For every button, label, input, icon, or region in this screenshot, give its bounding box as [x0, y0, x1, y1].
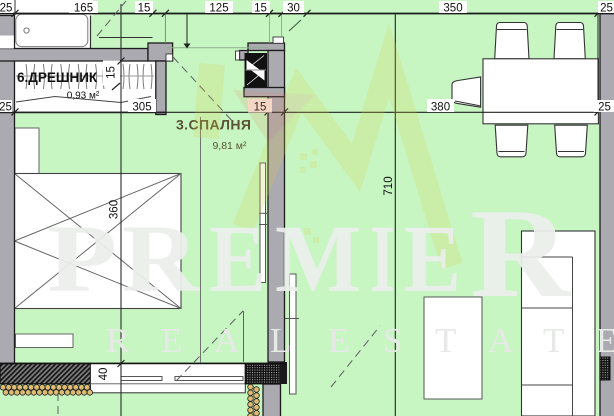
svg-text:E: E: [161, 321, 182, 360]
svg-text:6.ДРЕШНИК: 6.ДРЕШНИК: [17, 70, 98, 85]
svg-text:15: 15: [138, 3, 151, 15]
svg-text:E: E: [404, 205, 461, 312]
svg-text:T: T: [543, 321, 564, 360]
svg-text:9,81 м²: 9,81 м²: [212, 140, 247, 152]
svg-text:R: R: [106, 321, 130, 360]
svg-text:E: E: [328, 321, 349, 360]
svg-text:125: 125: [209, 3, 228, 15]
svg-text:P: P: [47, 205, 117, 312]
svg-text:25: 25: [0, 3, 12, 15]
svg-text:25: 25: [0, 102, 12, 114]
svg-text:15: 15: [254, 3, 267, 15]
svg-text:S: S: [383, 321, 402, 360]
svg-text:R: R: [122, 205, 201, 312]
svg-text:L: L: [270, 321, 291, 360]
svg-text:T: T: [435, 321, 456, 360]
svg-text:E: E: [209, 205, 266, 312]
svg-text:710: 710: [383, 176, 395, 195]
svg-text:I: I: [370, 205, 395, 312]
svg-text:25: 25: [600, 3, 613, 15]
svg-text:40: 40: [98, 368, 110, 381]
svg-text:350: 350: [443, 3, 462, 15]
svg-text:M: M: [275, 205, 361, 312]
svg-text:A: A: [488, 321, 514, 360]
svg-text:380: 380: [431, 102, 450, 114]
svg-text:R: R: [470, 182, 572, 324]
svg-text:A: A: [214, 321, 240, 360]
svg-text:165: 165: [74, 3, 93, 15]
svg-text:25: 25: [598, 102, 611, 114]
svg-text:0,93 м²: 0,93 м²: [67, 91, 100, 102]
svg-text:15: 15: [106, 66, 118, 79]
svg-text:305: 305: [132, 102, 151, 114]
svg-text:E: E: [596, 321, 614, 360]
svg-text:30: 30: [287, 3, 300, 15]
